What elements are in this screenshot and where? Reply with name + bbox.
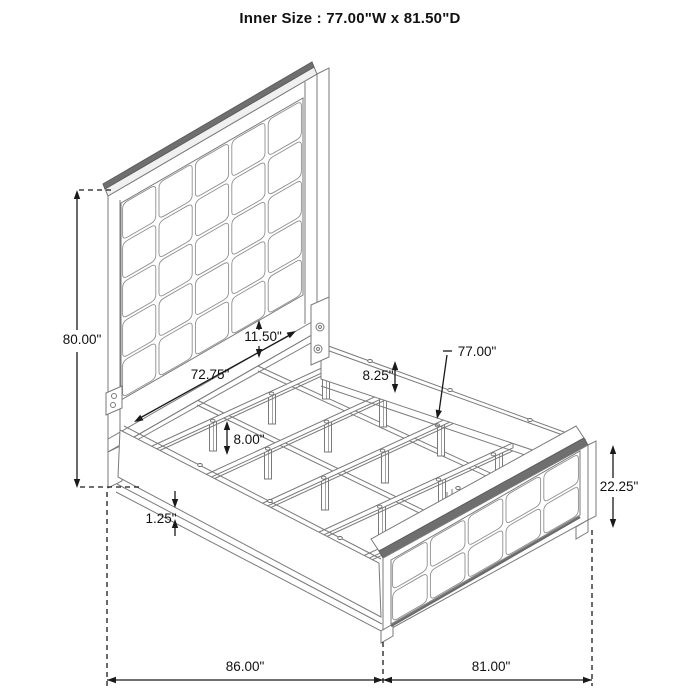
arrowhead: [374, 677, 383, 683]
screw-dot: [491, 453, 496, 456]
dim-label-rail-height: 8.25": [362, 368, 393, 383]
screw-dot: [436, 478, 441, 481]
dim-label-headboard-inner-width: 72.75": [191, 367, 230, 382]
arrowhead: [74, 190, 80, 199]
arrowhead: [383, 677, 392, 683]
arrowhead: [610, 445, 616, 454]
screw-dot: [448, 389, 453, 392]
arrowhead: [583, 677, 592, 683]
screw-dot: [456, 487, 461, 490]
screw-dot: [338, 537, 343, 540]
dim-label-panel-gap: 11.50": [244, 329, 282, 344]
screw-dot: [324, 420, 329, 423]
bracket-hole: [111, 403, 116, 408]
dim-label-rail-lip: 1.25": [145, 511, 176, 526]
screw-dot: [268, 500, 273, 503]
arrowhead: [224, 446, 230, 455]
bed-dimension-diagram: 80.00"72.75"11.50"8.25"77.00"8.00"1.25"2…: [0, 0, 700, 700]
bracket-hole: [112, 394, 117, 399]
screw-dot: [368, 360, 373, 363]
dim-label-slat-width: 77.00": [458, 344, 497, 359]
dim-label-headboard-height: 80.00": [63, 332, 102, 347]
footboard-right-cap: [588, 441, 596, 520]
diagram-canvas: Inner Size : 77.00"W x 81.50"D 80.00"72.…: [0, 0, 700, 700]
screw-dot: [265, 447, 270, 450]
screw-dot: [528, 419, 533, 422]
arrowhead: [224, 421, 230, 430]
screw-dot: [321, 476, 326, 479]
screw-dot: [269, 392, 274, 395]
screw-dot: [198, 464, 203, 467]
screw-dot: [377, 505, 382, 508]
screw-dot: [210, 419, 215, 422]
screw-dot: [380, 449, 385, 452]
dim-label-leg-height: 8.00": [233, 432, 264, 447]
bracket-hole: [314, 345, 322, 353]
slat: [261, 414, 457, 509]
dim-label-overall-width: 81.00": [472, 659, 511, 674]
bracket-hole: [316, 323, 324, 331]
arrowhead: [610, 519, 616, 528]
dim-label-overall-depth: 86.00": [226, 659, 265, 674]
dim-label-footboard-height: 22.25": [600, 479, 639, 494]
arrowhead: [74, 479, 80, 488]
arrowhead: [107, 677, 116, 683]
